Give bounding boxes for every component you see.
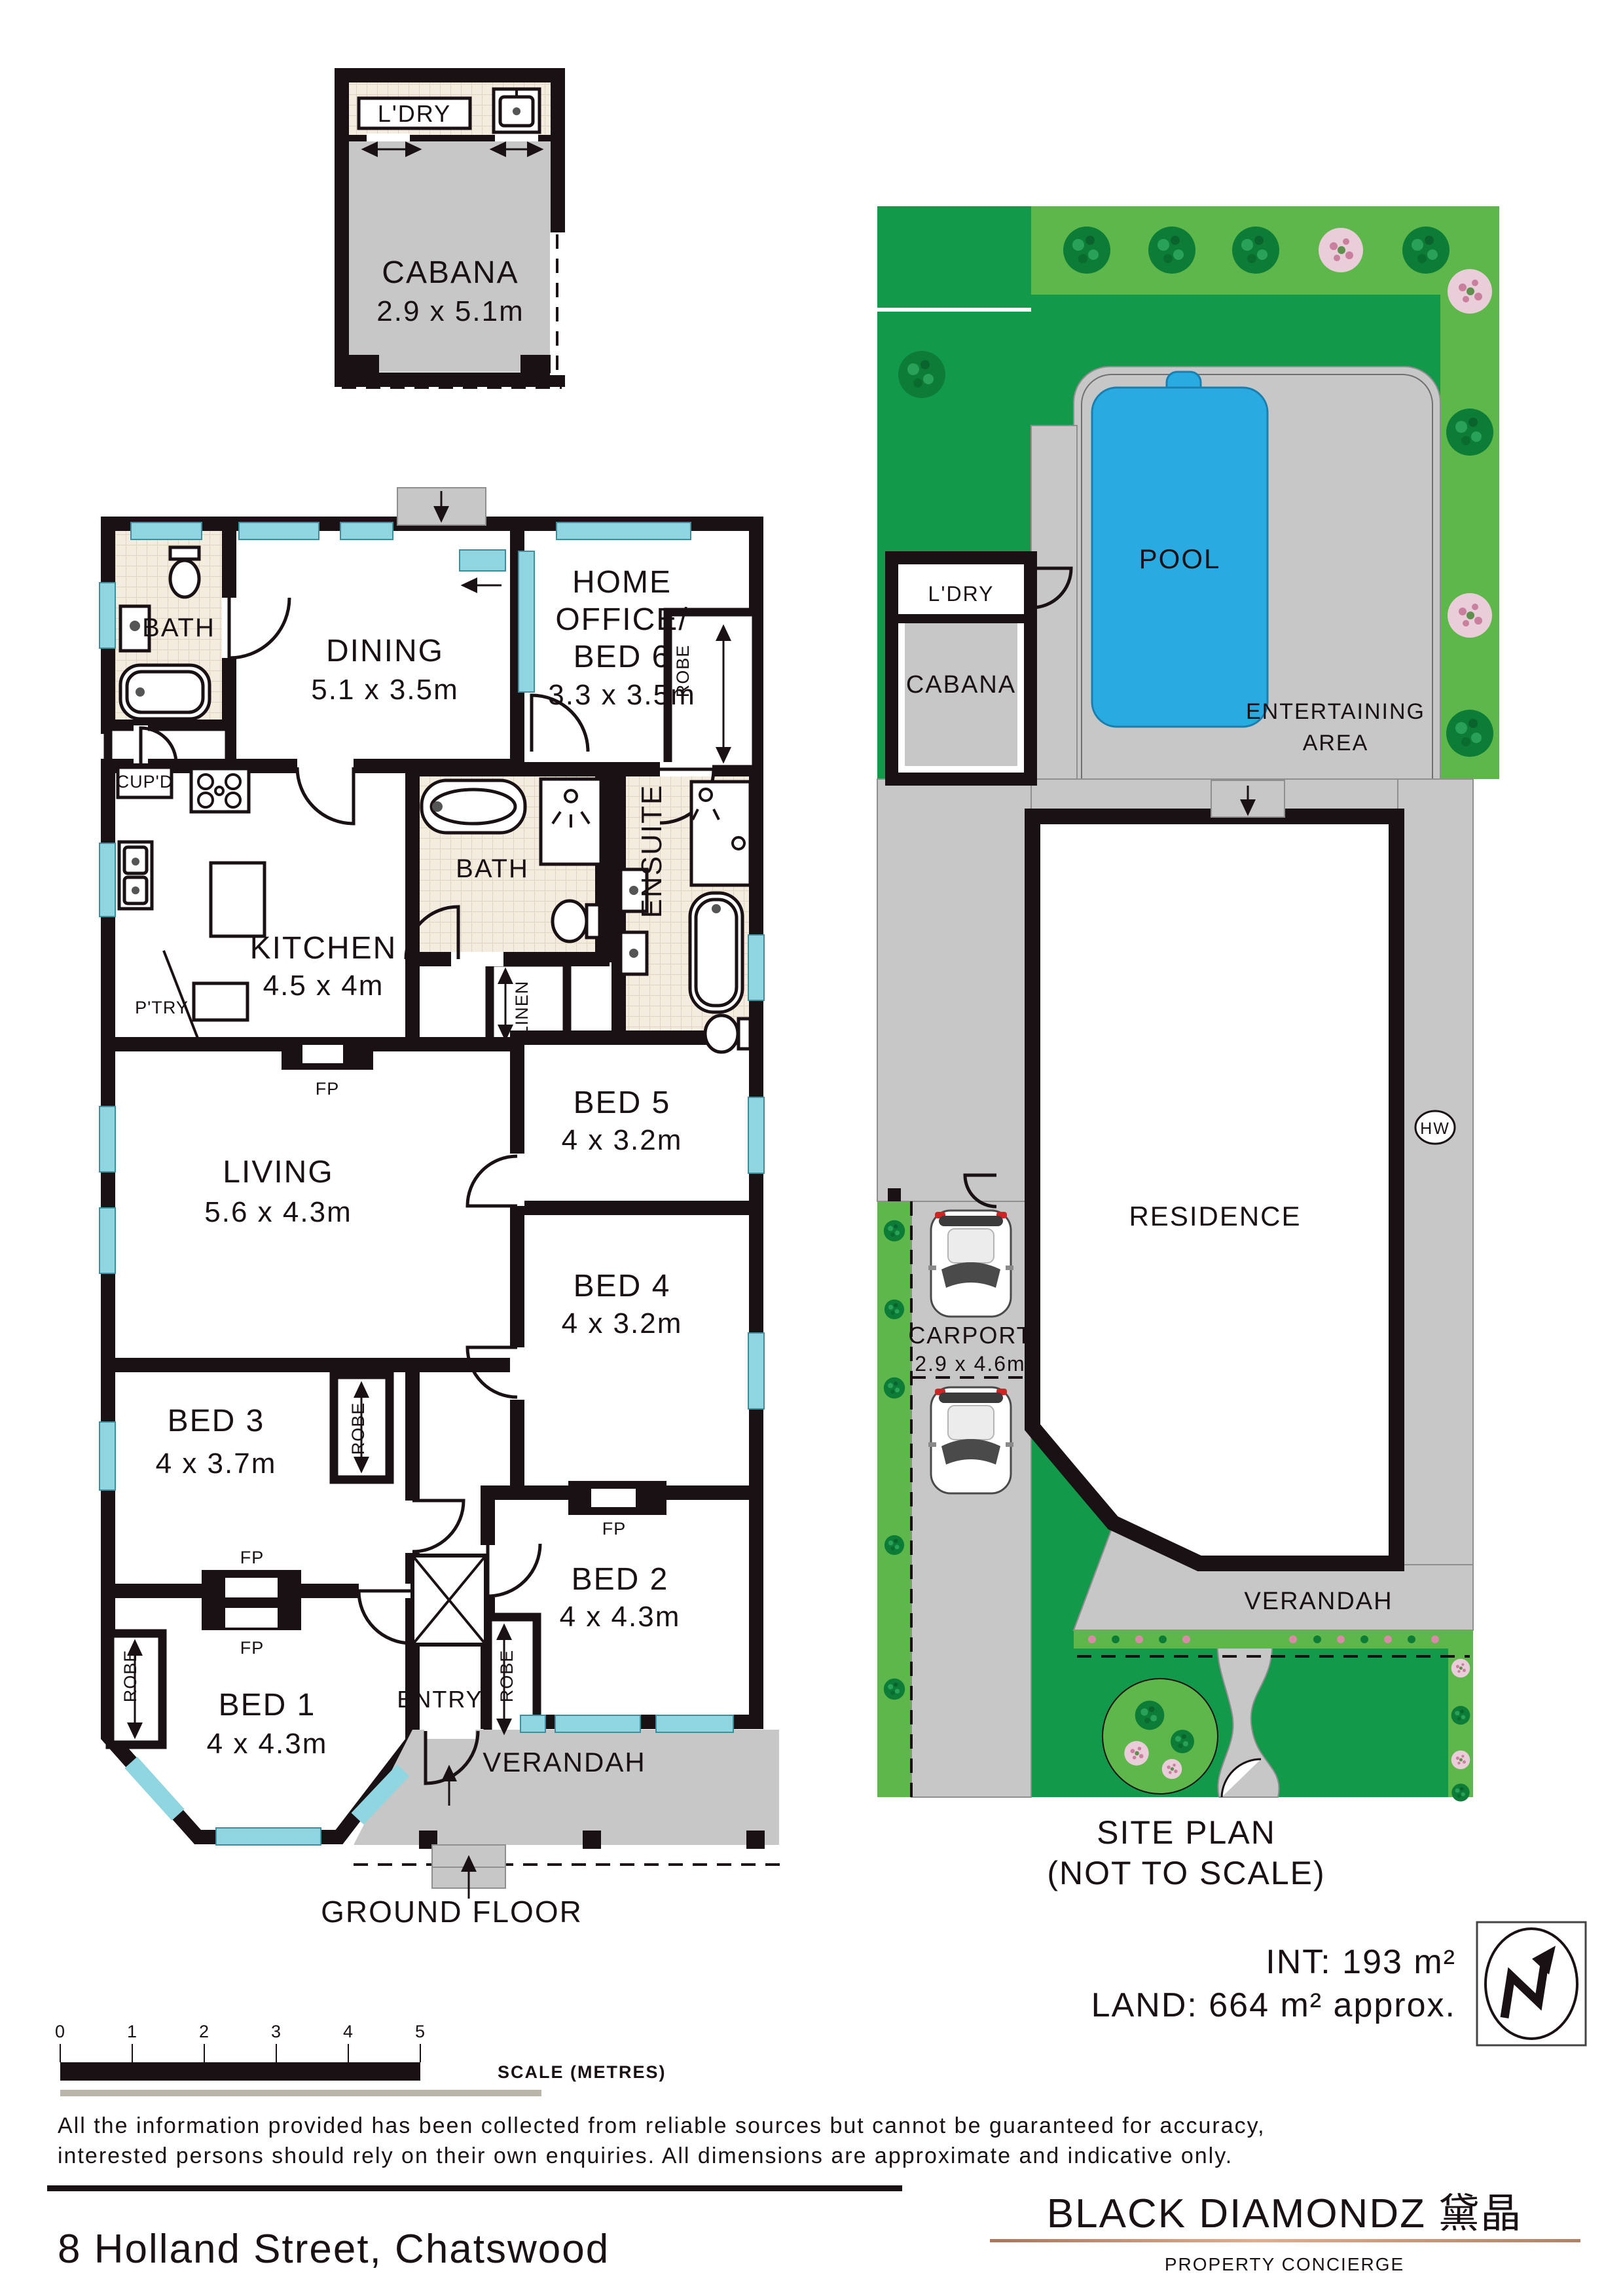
cupboard-label: CUP'D	[117, 772, 173, 792]
area-summary: INT: 193 m² LAND: 664 m² approx.	[1091, 1943, 1456, 2024]
cabana-ldry-label: L'DRY	[378, 100, 451, 127]
disclaimer-line-2: interested persons should rely on their …	[58, 2143, 1233, 2168]
room-bed5	[517, 1038, 756, 1208]
scale-tick-2: 2	[199, 2022, 210, 2041]
ensuite-tub-icon	[690, 893, 742, 1012]
kitchen-appliance	[194, 983, 247, 1020]
compass-icon	[1477, 1922, 1586, 2045]
verandah-label: VERANDAH	[483, 1747, 646, 1777]
fireplace-bed3-bed1	[202, 1570, 301, 1630]
scale-tick-3: 3	[271, 2022, 282, 2041]
linen-label: LINEN	[512, 981, 532, 1036]
land-area-label: LAND: 664 m² approx.	[1091, 1986, 1456, 2024]
robe-bed3-label: ROBE	[348, 1402, 368, 1455]
brand-name: BLACK DIAMONDZ 黛晶	[1047, 2191, 1522, 2236]
dining-label: DINING	[326, 634, 444, 668]
site-plan-subtitle: (NOT TO SCALE)	[1047, 1855, 1325, 1891]
carport-dims: 2.9 x 4.6m	[915, 1352, 1025, 1376]
toilet-icon	[170, 547, 199, 597]
living-label: LIVING	[223, 1155, 333, 1190]
pool-label: POOL	[1139, 543, 1221, 574]
pantry-label: P'TRY	[135, 998, 189, 1017]
floorplan-page: L'DRY CABANA 2.9 x 5.1m	[0, 0, 1623, 2296]
bath-top-label: BATH	[142, 613, 215, 642]
hot-water-icon: HW	[1415, 1111, 1455, 1144]
laundry-sink-icon	[494, 89, 539, 132]
bed1-dims: 4 x 4.3m	[207, 1728, 328, 1760]
residence-label: RESIDENCE	[1129, 1201, 1301, 1231]
floorplan-canvas: L'DRY CABANA 2.9 x 5.1m	[0, 0, 1623, 2296]
home-office-label-1: HOME	[572, 565, 672, 600]
home-office-label-3: BED 6	[574, 640, 671, 674]
bed5-label: BED 5	[574, 1085, 671, 1120]
garden-bed	[1103, 1679, 1218, 1794]
stove-icon	[191, 769, 249, 812]
site-ldry-label: L'DRY	[928, 582, 994, 606]
entry-label: ENTRY	[397, 1686, 483, 1713]
home-office-label-2: OFFICE/	[555, 602, 688, 637]
fp-bed2-label: FP	[602, 1519, 627, 1539]
shower-icon	[541, 779, 601, 864]
int-area-label: INT: 193 m²	[1266, 1943, 1456, 1981]
residence-building	[1032, 816, 1396, 1563]
bed3-dims: 4 x 3.7m	[156, 1448, 277, 1480]
bed4-dims: 4 x 3.2m	[562, 1307, 683, 1339]
robe-bed1-label: ROBE	[120, 1650, 140, 1703]
site-plan-title: SITE PLAN	[1097, 1814, 1276, 1851]
fireplace-bed2	[568, 1481, 666, 1515]
site-verandah-label: VERANDAH	[1244, 1588, 1393, 1615]
cabana-name-label: CABANA	[382, 255, 519, 290]
bath-mid-label: BATH	[456, 854, 529, 883]
room-bed4	[517, 1208, 756, 1493]
bed2-dims: 4 x 4.3m	[560, 1601, 681, 1633]
entertaining-label-2: AREA	[1303, 731, 1369, 756]
ensuite-shower-icon	[691, 782, 750, 885]
bed3-label: BED 3	[168, 1404, 265, 1438]
bed1-label: BED 1	[219, 1688, 316, 1722]
bathtub-icon	[120, 665, 210, 719]
fp-bed3-label: FP	[240, 1548, 264, 1567]
scale-tick-0: 0	[55, 2022, 65, 2041]
car-bottom	[928, 1387, 1013, 1493]
disclaimer: All the information provided has been co…	[58, 2113, 1266, 2168]
brand-logo: BLACK DIAMONDZ 黛晶 PROPERTY CONCIERGE	[990, 2191, 1580, 2274]
scale-units-label: SCALE (METRES)	[498, 2062, 666, 2082]
ensuite-label: ENSUITE	[636, 784, 668, 919]
bed5-dims: 4 x 3.2m	[562, 1124, 683, 1156]
property-address: 8 Holland Street, Chatswood	[58, 2227, 610, 2272]
brand-tagline: PROPERTY CONCIERGE	[1165, 2254, 1404, 2274]
kitchen-label: KITCHEN	[250, 931, 397, 966]
scale-tick-1: 1	[127, 2022, 137, 2041]
bed4-label: BED 4	[574, 1269, 671, 1303]
cabana-plan: L'DRY CABANA 2.9 x 5.1m	[342, 75, 567, 388]
footer-divider	[47, 2185, 902, 2191]
robe-bed2-label: ROBE	[497, 1650, 517, 1703]
fireplace-living	[282, 1037, 373, 1070]
scale-tick-4: 4	[343, 2022, 354, 2041]
cabana-dims-label: 2.9 x 5.1m	[376, 295, 524, 327]
car-top	[928, 1211, 1013, 1317]
site-plan: POOL L'DRY CABANA RESIDENCE ENTERTAINING…	[877, 206, 1499, 1891]
site-cabana-label: CABANA	[906, 671, 1016, 699]
robe-bed6-label: ROBE	[673, 645, 693, 698]
hw-label: HW	[1420, 1120, 1450, 1138]
ensuite-toilet-icon	[705, 1015, 750, 1052]
living-dims: 5.6 x 4.3m	[204, 1196, 352, 1228]
skylight	[412, 1556, 486, 1645]
toilet2-icon	[553, 901, 600, 941]
kitchen-dims: 4.5 x 4m	[263, 970, 384, 1002]
dining-dims: 5.1 x 3.5m	[311, 674, 458, 706]
bed2-label: BED 2	[572, 1562, 669, 1597]
ground-floor-title: GROUND FLOOR	[321, 1895, 583, 1929]
scale-bar: 0 1 2 3 4 5 SCALE (METRES)	[55, 2022, 666, 2096]
bathtub2-icon	[422, 780, 525, 833]
disclaimer-line-1: All the information provided has been co…	[58, 2113, 1266, 2138]
carport-label: CARPORT	[908, 1322, 1032, 1349]
scale-tick-5: 5	[415, 2022, 426, 2041]
kitchen-island	[211, 863, 264, 936]
kitchen-sink-icon	[119, 842, 152, 909]
fp-bed1-label: FP	[240, 1638, 264, 1658]
entertaining-label-1: ENTERTAINING	[1246, 699, 1425, 724]
fp-living-label: FP	[316, 1079, 340, 1099]
ground-floor-plan: BATH DINING 5.1 x 3.5m HOME OFFICE/ BED …	[100, 488, 780, 1929]
